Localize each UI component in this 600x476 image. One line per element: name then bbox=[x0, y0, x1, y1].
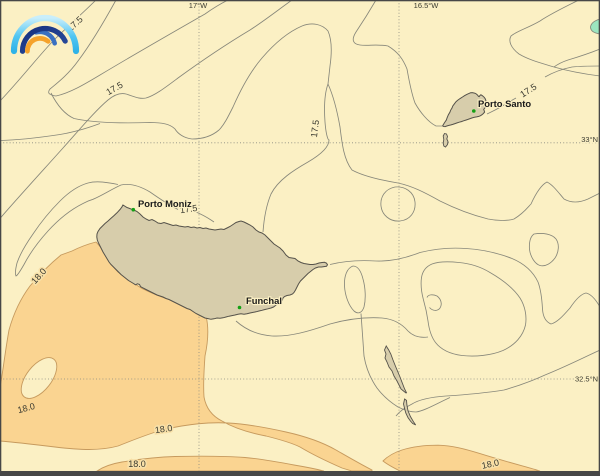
svg-text:Porto Moniz: Porto Moniz bbox=[138, 198, 192, 209]
svg-text:18.0: 18.0 bbox=[128, 459, 146, 469]
svg-text:16.5°W: 16.5°W bbox=[414, 1, 440, 10]
svg-text:Funchal: Funchal bbox=[246, 295, 282, 306]
svg-text:33°N: 33°N bbox=[581, 135, 598, 144]
svg-text:17.5: 17.5 bbox=[309, 119, 321, 138]
svg-text:32.5°N: 32.5°N bbox=[575, 375, 598, 384]
svg-text:Porto Santo: Porto Santo bbox=[478, 98, 531, 109]
svg-text:17°W: 17°W bbox=[189, 1, 208, 10]
